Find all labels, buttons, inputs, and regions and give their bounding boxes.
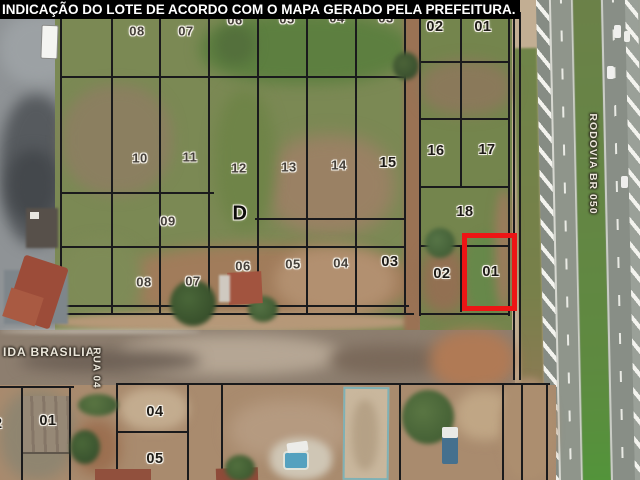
lot-label-04: 04 bbox=[146, 404, 163, 420]
lot-label-01: 01 bbox=[482, 264, 499, 280]
lot-label-05: 05 bbox=[146, 451, 163, 467]
lot-label-08: 08 bbox=[129, 24, 144, 39]
lot-label-16: 16 bbox=[427, 143, 444, 159]
lot-label-11: 11 bbox=[183, 150, 198, 165]
street-label-avenida-brasilia: IDA BRASILIA bbox=[3, 345, 95, 359]
map-canvas[interactable]: 0807060504030201101112131415161709D18080… bbox=[0, 0, 640, 480]
lot-label-10: 10 bbox=[132, 151, 147, 166]
lot-label-01: 01 bbox=[39, 413, 56, 429]
lot-label-02: 02 bbox=[433, 266, 450, 282]
lot-label-02: 02 bbox=[426, 19, 443, 35]
lot-label-01: 01 bbox=[474, 19, 491, 35]
lot-label-09: 09 bbox=[160, 214, 175, 229]
street-label-rua-04: RUA 04 bbox=[91, 347, 102, 388]
lot-label-14: 14 bbox=[331, 158, 346, 173]
lot-label-07: 07 bbox=[185, 274, 200, 289]
lot-label-15: 15 bbox=[379, 155, 396, 171]
lot-label-06: 06 bbox=[235, 259, 250, 274]
lot-label-07: 07 bbox=[178, 24, 193, 39]
street-label-rodovia-br-050: RODOVIA BR 050 bbox=[587, 113, 599, 214]
lot-label-08: 08 bbox=[136, 275, 151, 290]
lot-label-03: 03 bbox=[381, 254, 398, 270]
lot-label-18: 18 bbox=[456, 204, 473, 220]
lot-label-D: D bbox=[233, 203, 248, 226]
title-text: INDICAÇÃO DO LOTE DE ACORDO COM O MAPA G… bbox=[2, 2, 516, 17]
title-bar: INDICAÇÃO DO LOTE DE ACORDO COM O MAPA G… bbox=[0, 0, 520, 19]
lot-label-17: 17 bbox=[478, 142, 495, 158]
labels-layer: 0807060504030201101112131415161709D18080… bbox=[0, 0, 640, 480]
lot-label-02: 02 bbox=[0, 416, 3, 432]
lot-label-05: 05 bbox=[285, 257, 300, 272]
lot-label-13: 13 bbox=[281, 160, 296, 175]
lot-label-04: 04 bbox=[333, 256, 348, 271]
lot-label-12: 12 bbox=[231, 161, 246, 176]
